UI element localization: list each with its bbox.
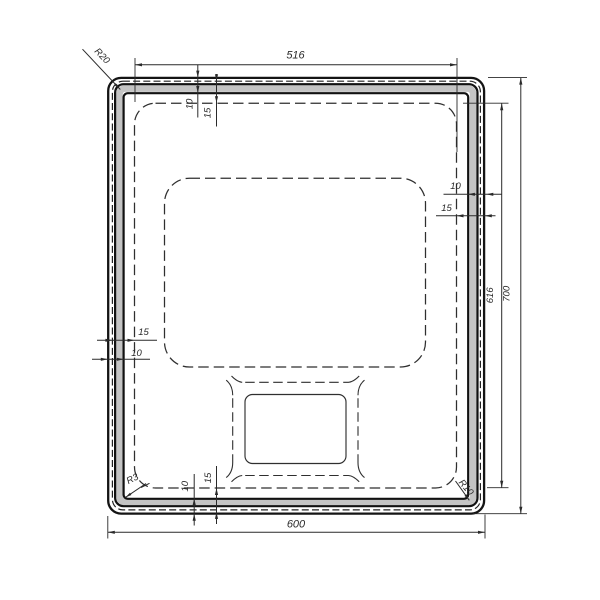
svg-text:10: 10 [131,348,142,359]
svg-text:600: 600 [287,519,306,531]
svg-text:10: 10 [185,98,196,109]
svg-text:15: 15 [138,327,149,338]
svg-text:R3: R3 [125,471,141,487]
svg-text:516: 516 [286,50,305,62]
svg-text:15: 15 [203,472,214,483]
svg-text:15: 15 [441,203,452,214]
svg-text:10: 10 [450,181,461,192]
svg-text:R20: R20 [92,46,113,67]
svg-text:10: 10 [180,480,191,491]
svg-text:700: 700 [502,285,513,302]
svg-text:15: 15 [203,107,214,118]
svg-text:616: 616 [485,287,496,304]
